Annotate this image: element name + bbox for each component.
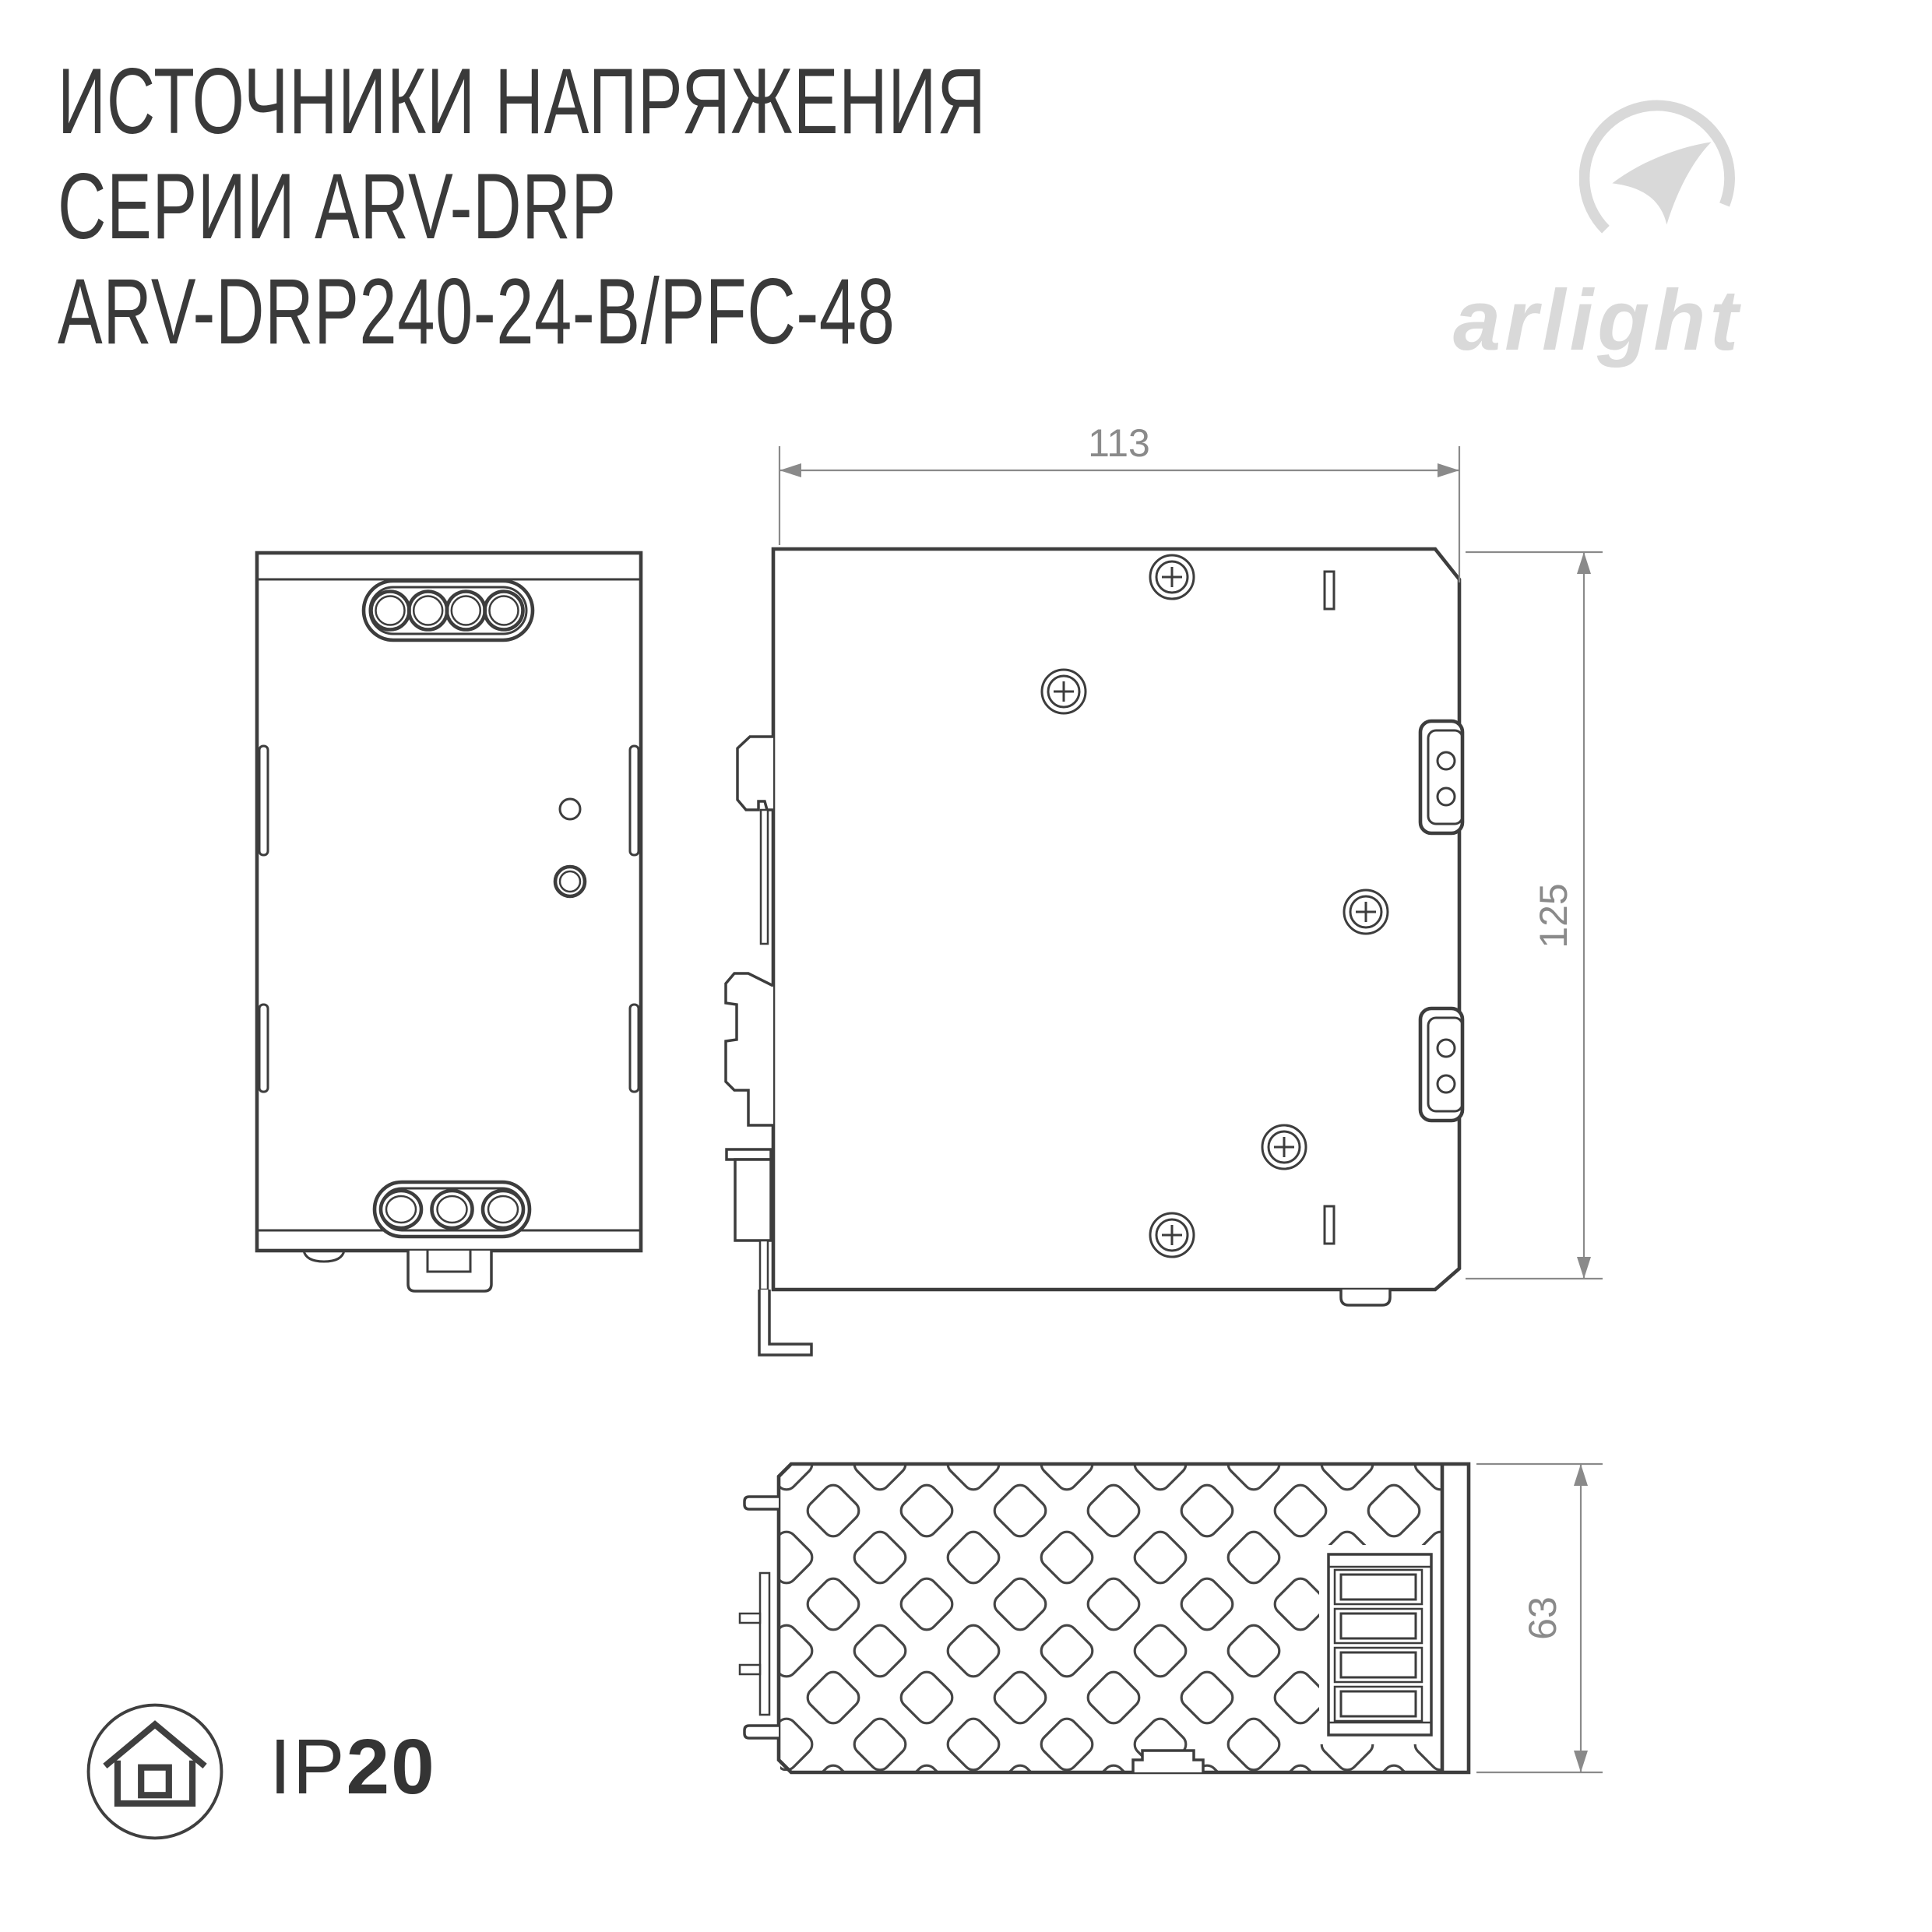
dim-height-label: 125 bbox=[1532, 883, 1575, 948]
bottom-view bbox=[740, 1464, 1469, 1772]
dimension-height: 125 bbox=[1466, 552, 1603, 1279]
side-right-tab bbox=[1420, 721, 1462, 833]
ip-rating-value: 20 bbox=[346, 1723, 435, 1811]
front-notch bbox=[259, 1005, 268, 1092]
dim-depth-label: 63 bbox=[1521, 1596, 1564, 1640]
bottom-center-tab bbox=[1133, 1751, 1203, 1772]
front-notch bbox=[259, 746, 268, 855]
front-output-terminals bbox=[375, 1182, 530, 1237]
front-din-clip bbox=[304, 1251, 491, 1291]
dimension-depth: 63 bbox=[1476, 1464, 1603, 1772]
side-view bbox=[726, 549, 1462, 1355]
front-input-terminals bbox=[364, 581, 533, 640]
bottom-left-tabs bbox=[740, 1497, 779, 1738]
ip-rating: IP20 bbox=[269, 1723, 436, 1812]
ip20-house-icon bbox=[86, 1702, 224, 1841]
potentiometer-inner bbox=[560, 871, 580, 892]
front-view bbox=[257, 553, 641, 1291]
front-notch bbox=[630, 1005, 639, 1092]
ip-rating-prefix: IP bbox=[269, 1723, 346, 1811]
bottom-terminal-block bbox=[1328, 1554, 1431, 1735]
front-notch bbox=[630, 746, 639, 855]
datasheet-page: ИСТОЧНИКИ НАПРЯЖЕНИЯ СЕРИИ ARV-DRP ARV-D… bbox=[0, 0, 1932, 1932]
technical-drawing: 113 125 63 bbox=[0, 0, 1932, 1932]
led-indicator bbox=[560, 799, 580, 819]
dim-width-label: 113 bbox=[1088, 421, 1150, 465]
side-bottom-tab bbox=[1341, 1290, 1390, 1305]
side-right-tab bbox=[1420, 1008, 1462, 1121]
